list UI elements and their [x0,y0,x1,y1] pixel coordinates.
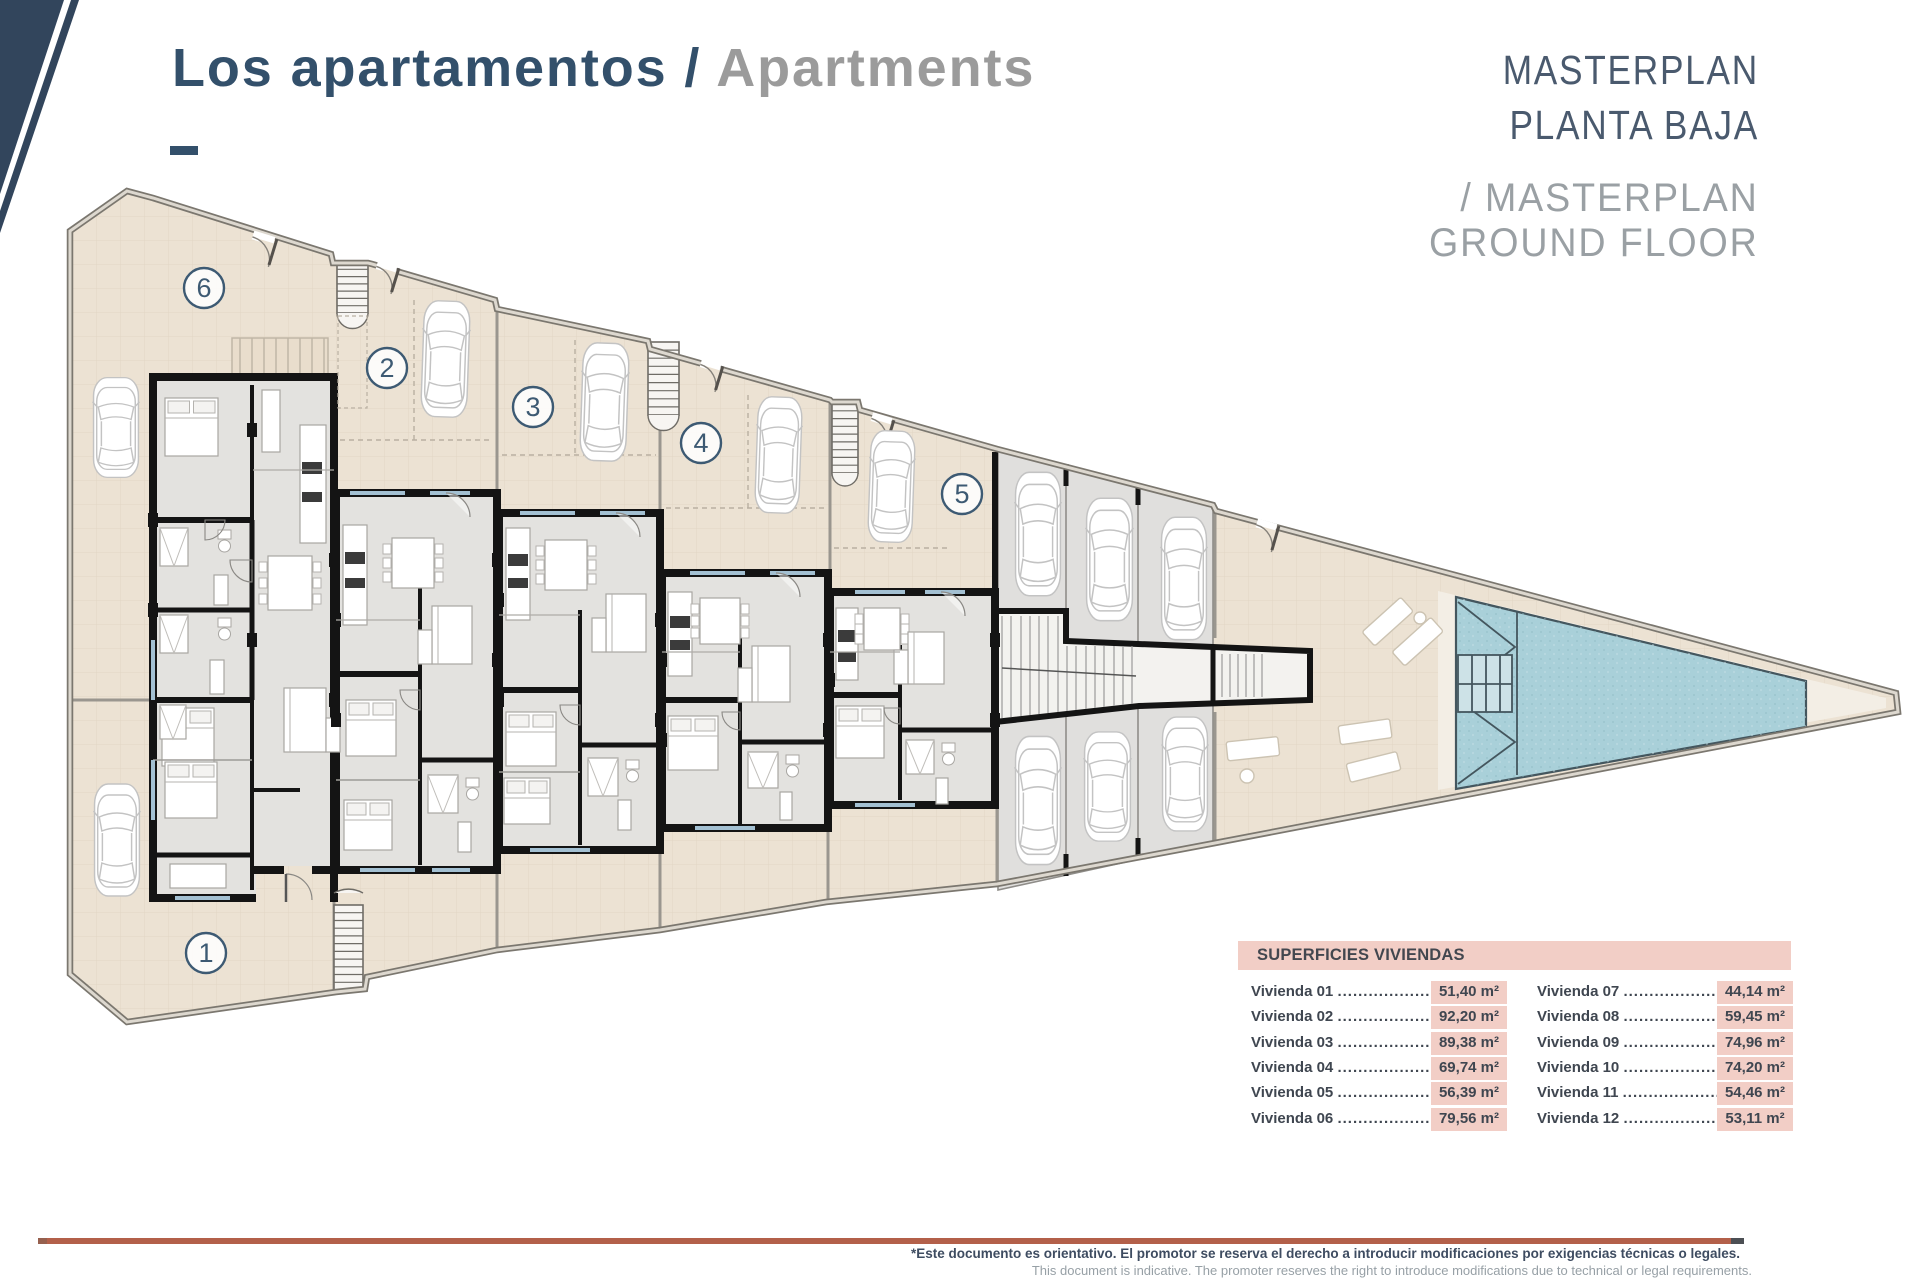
svg-text:1: 1 [198,938,213,968]
svg-text:2: 2 [379,353,394,383]
svg-text:3: 3 [525,392,540,422]
svg-text:4: 4 [693,428,708,458]
svg-text:5: 5 [954,479,969,509]
svg-text:6: 6 [196,273,211,303]
